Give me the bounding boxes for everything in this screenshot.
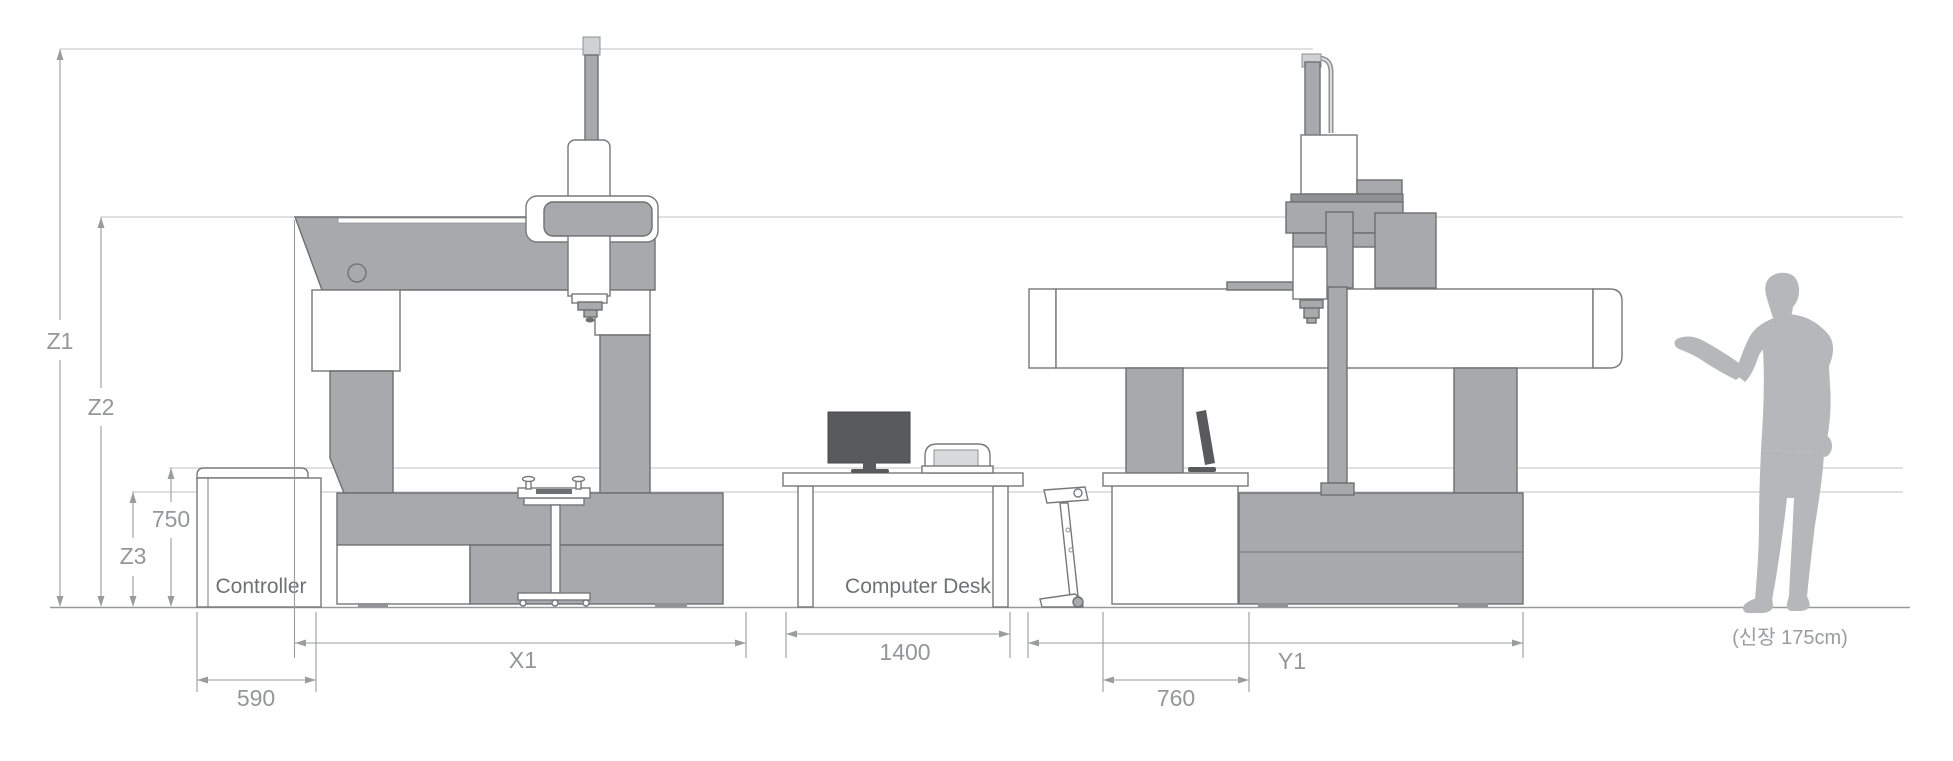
side-support-column-front [1126, 368, 1183, 473]
printer [922, 444, 993, 473]
front-beam-rail [338, 218, 527, 223]
side-saddle-block [1375, 213, 1436, 288]
side-z-column-lower [1328, 287, 1347, 483]
side-probe-mount [1300, 300, 1323, 308]
side-spindle-rod [1305, 62, 1320, 136]
computer-desk-label: Computer Desk [845, 575, 991, 598]
monitor-neck [863, 462, 876, 470]
monitor-screen [828, 412, 910, 463]
installation-diagram: Controller Computer Desk [0, 0, 1953, 761]
person-height-note: (신장 175cm) [1732, 626, 1848, 649]
controller-cabinet: Controller [197, 468, 321, 607]
dim-750: 750 [152, 468, 190, 607]
front-x-carriage-bar [544, 202, 652, 236]
side-carriage-plate [1291, 194, 1403, 202]
dim-760-label: 760 [1157, 685, 1195, 711]
console-monitor-foot [1188, 467, 1216, 472]
work-stand-foot [518, 593, 590, 600]
side-base [1239, 493, 1523, 604]
front-probe-tip [586, 318, 595, 323]
dim-z1-label: Z1 [47, 328, 74, 354]
front-base-foot-left [358, 603, 388, 607]
console-top [1103, 473, 1248, 486]
person-torso [1734, 314, 1833, 453]
side-z-column-foot [1321, 483, 1354, 495]
dim-750-label: 750 [152, 506, 190, 532]
controller-lid [197, 468, 308, 478]
desk-leg-left [798, 486, 813, 607]
front-left-leg-upper [312, 290, 400, 371]
controller-label: Controller [215, 575, 306, 598]
front-right-leg-lower [600, 335, 650, 493]
console-cabinet [1112, 485, 1238, 604]
front-z-housing-lower [568, 236, 610, 296]
work-stand-plate2 [524, 498, 584, 505]
dim-590-label: 590 [237, 685, 275, 711]
front-view-machine: Controller [197, 37, 723, 607]
desktop-monitor [828, 412, 910, 473]
dim-1400: 1400 [786, 612, 1010, 665]
stool-wheel [1073, 597, 1083, 607]
side-carriage-step [1357, 180, 1402, 194]
side-z-assembly [1227, 54, 1436, 495]
dim-z3-label: Z3 [120, 543, 147, 569]
work-stand-column [551, 505, 560, 593]
work-stand-screw-left-cap [523, 477, 535, 482]
front-left-leg-lower [330, 371, 393, 493]
side-base-foot-right [1458, 603, 1488, 607]
dim-z1: Z1 [47, 49, 74, 607]
dim-z2-label: Z2 [88, 394, 115, 420]
side-support-column-rear [1454, 368, 1517, 493]
dim-y1: Y1 [1028, 612, 1523, 674]
dim-y1-label: Y1 [1278, 648, 1306, 674]
desk-top [783, 473, 1023, 486]
work-stand-foot-pad-1 [520, 600, 526, 606]
person-head [1765, 273, 1799, 318]
work-stand-foot-pad-2 [552, 600, 558, 606]
side-beam-left-cap [1029, 289, 1056, 368]
front-z-housing-upper [568, 140, 610, 203]
side-probe-housing [1293, 247, 1327, 299]
stool-seat-knob [1074, 489, 1082, 497]
side-probe-tip [1307, 318, 1316, 323]
drafting-stool [1040, 487, 1088, 607]
front-base-foot-right [655, 603, 687, 607]
side-carriage-ledge [1227, 282, 1293, 290]
side-view-machine [1029, 54, 1622, 607]
side-z-column-upper [1326, 212, 1353, 288]
front-base-lower-white [337, 545, 470, 604]
person-legs [1755, 450, 1824, 600]
side-base-foot-left [1258, 603, 1288, 607]
dim-z2: Z2 [88, 217, 115, 607]
front-probe-body [584, 310, 597, 317]
side-beam [1056, 289, 1593, 368]
work-stand-foot-pad-3 [583, 600, 589, 606]
operator-silhouette [1675, 273, 1834, 613]
desk-leg-right [993, 486, 1008, 607]
front-spindle-cap [583, 37, 600, 55]
computer-desk: Computer Desk [783, 412, 1023, 607]
printer-body [934, 450, 978, 467]
dim-x1-label: X1 [509, 647, 537, 673]
side-z-housing [1301, 135, 1357, 194]
work-stand-screw-right-cap [573, 477, 585, 482]
dim-z3: Z3 [120, 492, 147, 607]
side-beam-right-cap [1593, 289, 1622, 368]
monitor-foot [851, 469, 889, 473]
console-monitor-screen [1196, 410, 1215, 465]
front-spindle-rod [585, 55, 598, 141]
person-left-shoe [1743, 597, 1773, 613]
person-pointing-arm [1675, 337, 1747, 381]
work-stand-slot [536, 489, 572, 494]
dim-590: 590 [197, 612, 316, 711]
dim-1400-label: 1400 [879, 639, 930, 665]
front-base-lower-gray [470, 545, 723, 604]
dim-760: 760 [1103, 612, 1249, 711]
person-right-shoe [1787, 594, 1810, 611]
diagram-canvas: Controller Computer Desk [0, 0, 1953, 761]
printer-base [922, 466, 993, 473]
side-probe-body [1304, 308, 1319, 318]
front-probe-mount [578, 302, 602, 310]
